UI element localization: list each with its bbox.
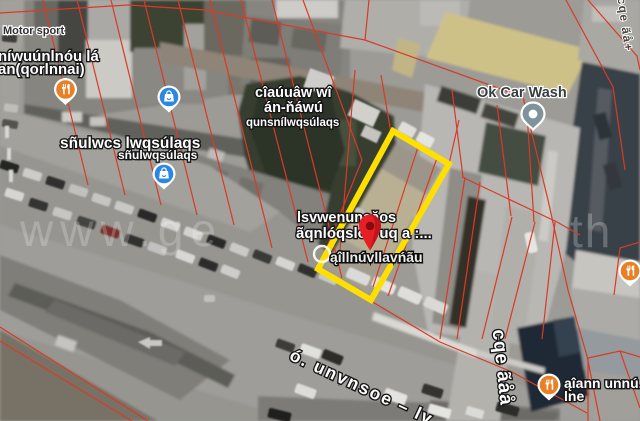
svg-text:lne: lne	[564, 388, 584, 404]
svg-text:Ok Car Wash: Ok Car Wash	[477, 85, 567, 101]
svg-text:lsvwenunaăos: lsvwenunaăos	[297, 210, 396, 226]
svg-text:th: th	[570, 205, 612, 257]
svg-text:www.ge: www.ge	[19, 204, 223, 256]
svg-text:Motor sport: Motor sport	[3, 25, 64, 37]
svg-text:án-ňáwú: án-ňáwú	[264, 100, 323, 116]
svg-text:ąîllnúvllavńãu: ąîllnúvllavńãu	[330, 249, 423, 265]
svg-text:sñulwqsúlaqs: sñulwqsúlaqs	[118, 148, 198, 162]
svg-text:an(qorlnnai): an(qorlnnai)	[0, 61, 85, 78]
svg-text:qunsnílwqsúlaqs: qunsnílwqsúlaqs	[246, 117, 339, 129]
svg-text:cîaúuâw wî: cîaúuâw wî	[255, 85, 333, 101]
